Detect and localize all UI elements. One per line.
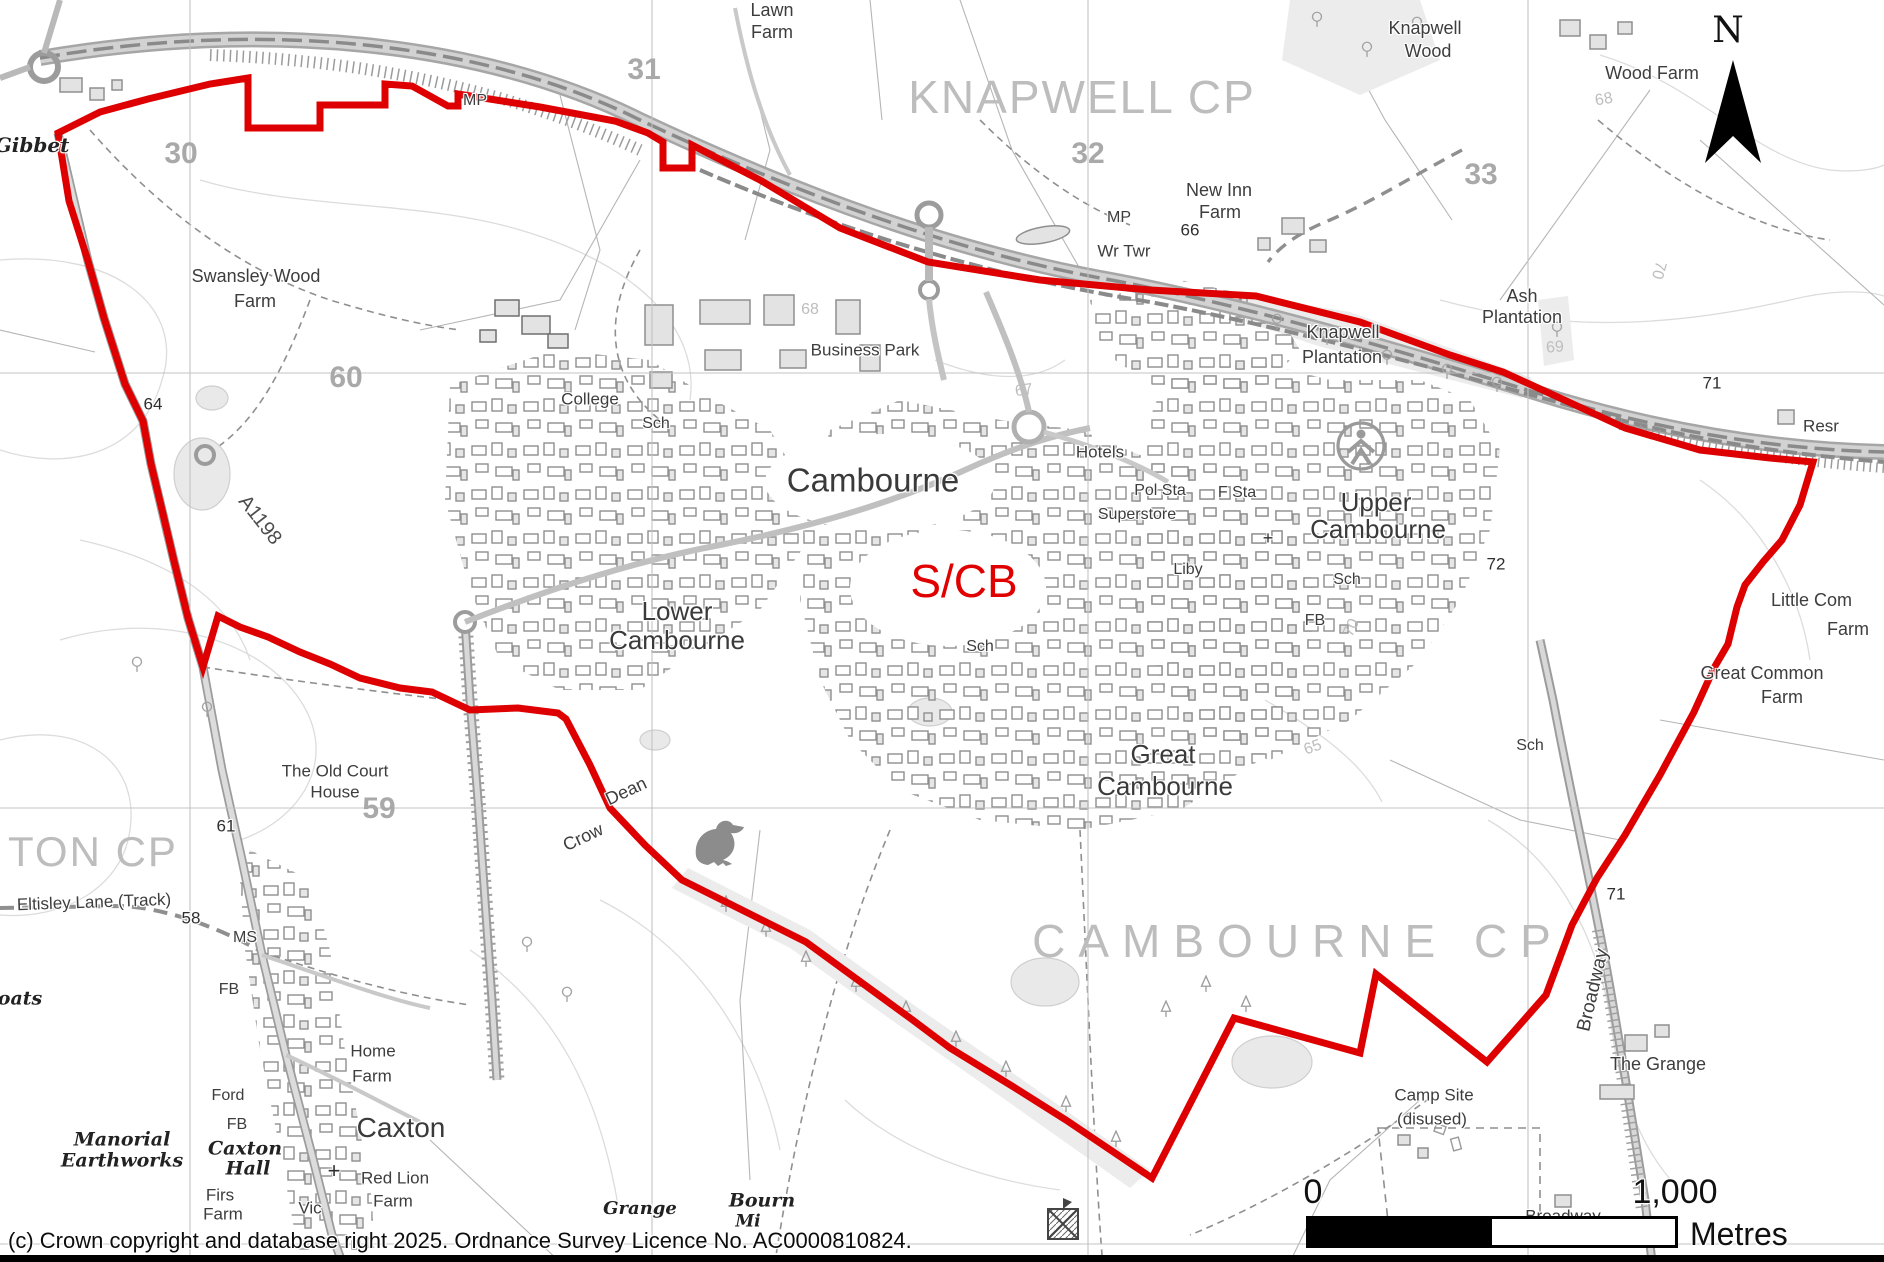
scale-bar-filled-half [1309,1219,1492,1245]
windmill-icon [1048,1198,1078,1239]
os-map: TON CPKNAPWELL CPCAMBOURNE CPCambourneLo… [0,0,1884,1262]
map-canvas [0,0,1884,1262]
north-arrow-icon [1705,60,1761,163]
road-a428 [0,0,1884,468]
copyright-text: (c) Crown copyright and database right 2… [8,1228,912,1254]
scale-max-label: 1,000 [1632,1175,1717,1209]
north-arrow-label: N [1712,13,1744,49]
bottom-border [0,1255,1884,1262]
road-broadway [1540,640,1652,1262]
scale-zero-label: 0 [1304,1175,1323,1209]
scale-bar [1306,1216,1678,1248]
urban-areas [240,280,1500,1262]
clearing-scb [850,530,1046,646]
clearing-cambourne [765,434,995,530]
scale-unit-label: Metres [1690,1218,1788,1250]
duck-icon [696,821,744,866]
